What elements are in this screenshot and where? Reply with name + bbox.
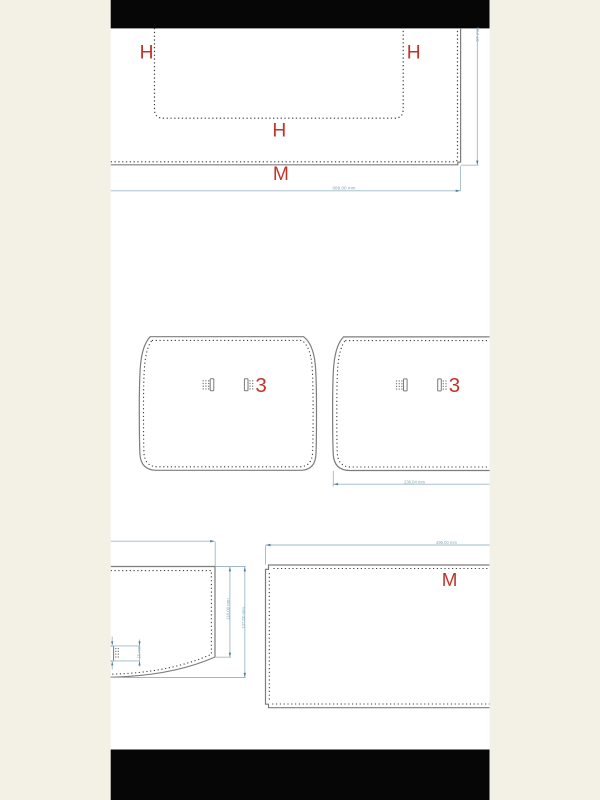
svg-text:57 mm: 57 mm bbox=[475, 27, 480, 41]
svg-text:496.00 mm: 496.00 mm bbox=[436, 540, 457, 545]
svg-text:137.00 mm: 137.00 mm bbox=[241, 607, 246, 629]
svg-text:H: H bbox=[272, 121, 286, 142]
svg-text:H: H bbox=[140, 43, 154, 64]
svg-text:3: 3 bbox=[255, 374, 266, 397]
svg-text:M: M bbox=[442, 569, 458, 590]
svg-text:236.04 mm: 236.04 mm bbox=[404, 479, 425, 484]
svg-text:15 mm: 15 mm bbox=[136, 645, 141, 658]
svg-text:H: H bbox=[407, 43, 421, 64]
svg-text:M: M bbox=[273, 164, 289, 185]
svg-text:686.00 mm: 686.00 mm bbox=[333, 185, 356, 190]
svg-text:118.00 mm: 118.00 mm bbox=[226, 598, 231, 620]
